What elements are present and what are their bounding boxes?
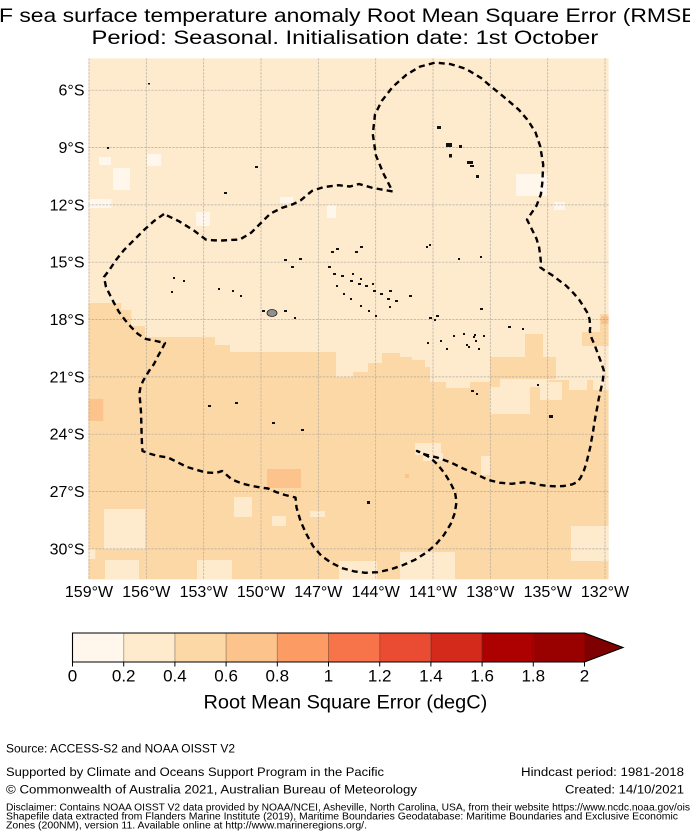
svg-text:6°S: 6°S [59,83,85,100]
svg-text:153°W: 153°W [180,584,229,601]
svg-text:0.6: 0.6 [214,667,238,686]
svg-text:Hindcast period: 1981-2018: Hindcast period: 1981-2018 [521,765,684,779]
svg-text:15°S: 15°S [50,255,85,272]
svg-text:Period: Seasonal. Initialisati: Period: Seasonal. Initialisation date: 1… [92,27,599,49]
svg-text:1.6: 1.6 [470,667,494,686]
svg-text:1.2: 1.2 [368,667,392,686]
svg-text:132°W: 132°W [581,584,630,601]
svg-text:2: 2 [580,667,589,686]
svg-text:Root Mean Square Error (degC): Root Mean Square Error (degC) [204,691,488,713]
svg-text:21°S: 21°S [50,369,85,386]
svg-text:1: 1 [324,667,333,686]
svg-text:144°W: 144°W [352,584,401,601]
svg-text:12°S: 12°S [50,197,85,214]
svg-text:© Commonwealth of Australia 20: © Commonwealth of Australia 2021, Austra… [6,783,418,797]
svg-text:24°S: 24°S [50,427,85,444]
svg-text:18°S: 18°S [50,312,85,329]
svg-text:Supported by Climate and Ocean: Supported by Climate and Oceans Support … [6,765,384,779]
svg-text:0: 0 [68,667,77,686]
svg-text:147°W: 147°W [294,584,343,601]
svg-text:0.8: 0.8 [265,667,289,686]
svg-text:9°S: 9°S [59,140,85,157]
svg-text:30°S: 30°S [50,541,85,558]
svg-text:1.4: 1.4 [419,667,443,686]
svg-text:Zones (200NM), version 11. Ava: Zones (200NM), version 11. Available onl… [6,821,367,832]
svg-text:141°W: 141°W [409,584,458,601]
svg-text:27°S: 27°S [50,484,85,501]
svg-text:F sea surface temperature anom: F sea surface temperature anomaly Root M… [0,5,690,27]
svg-text:159°W: 159°W [65,584,114,601]
svg-text:1.8: 1.8 [521,667,545,686]
svg-text:Source: ACCESS-S2 and NOAA OIS: Source: ACCESS-S2 and NOAA OISST V2 [6,741,235,755]
svg-text:135°W: 135°W [524,584,573,601]
svg-text:0.4: 0.4 [163,667,187,686]
svg-text:Created: 14/10/2021: Created: 14/10/2021 [565,783,684,797]
svg-text:138°W: 138°W [466,584,515,601]
svg-text:0.2: 0.2 [112,667,136,686]
svg-text:156°W: 156°W [122,584,171,601]
svg-text:150°W: 150°W [237,584,286,601]
